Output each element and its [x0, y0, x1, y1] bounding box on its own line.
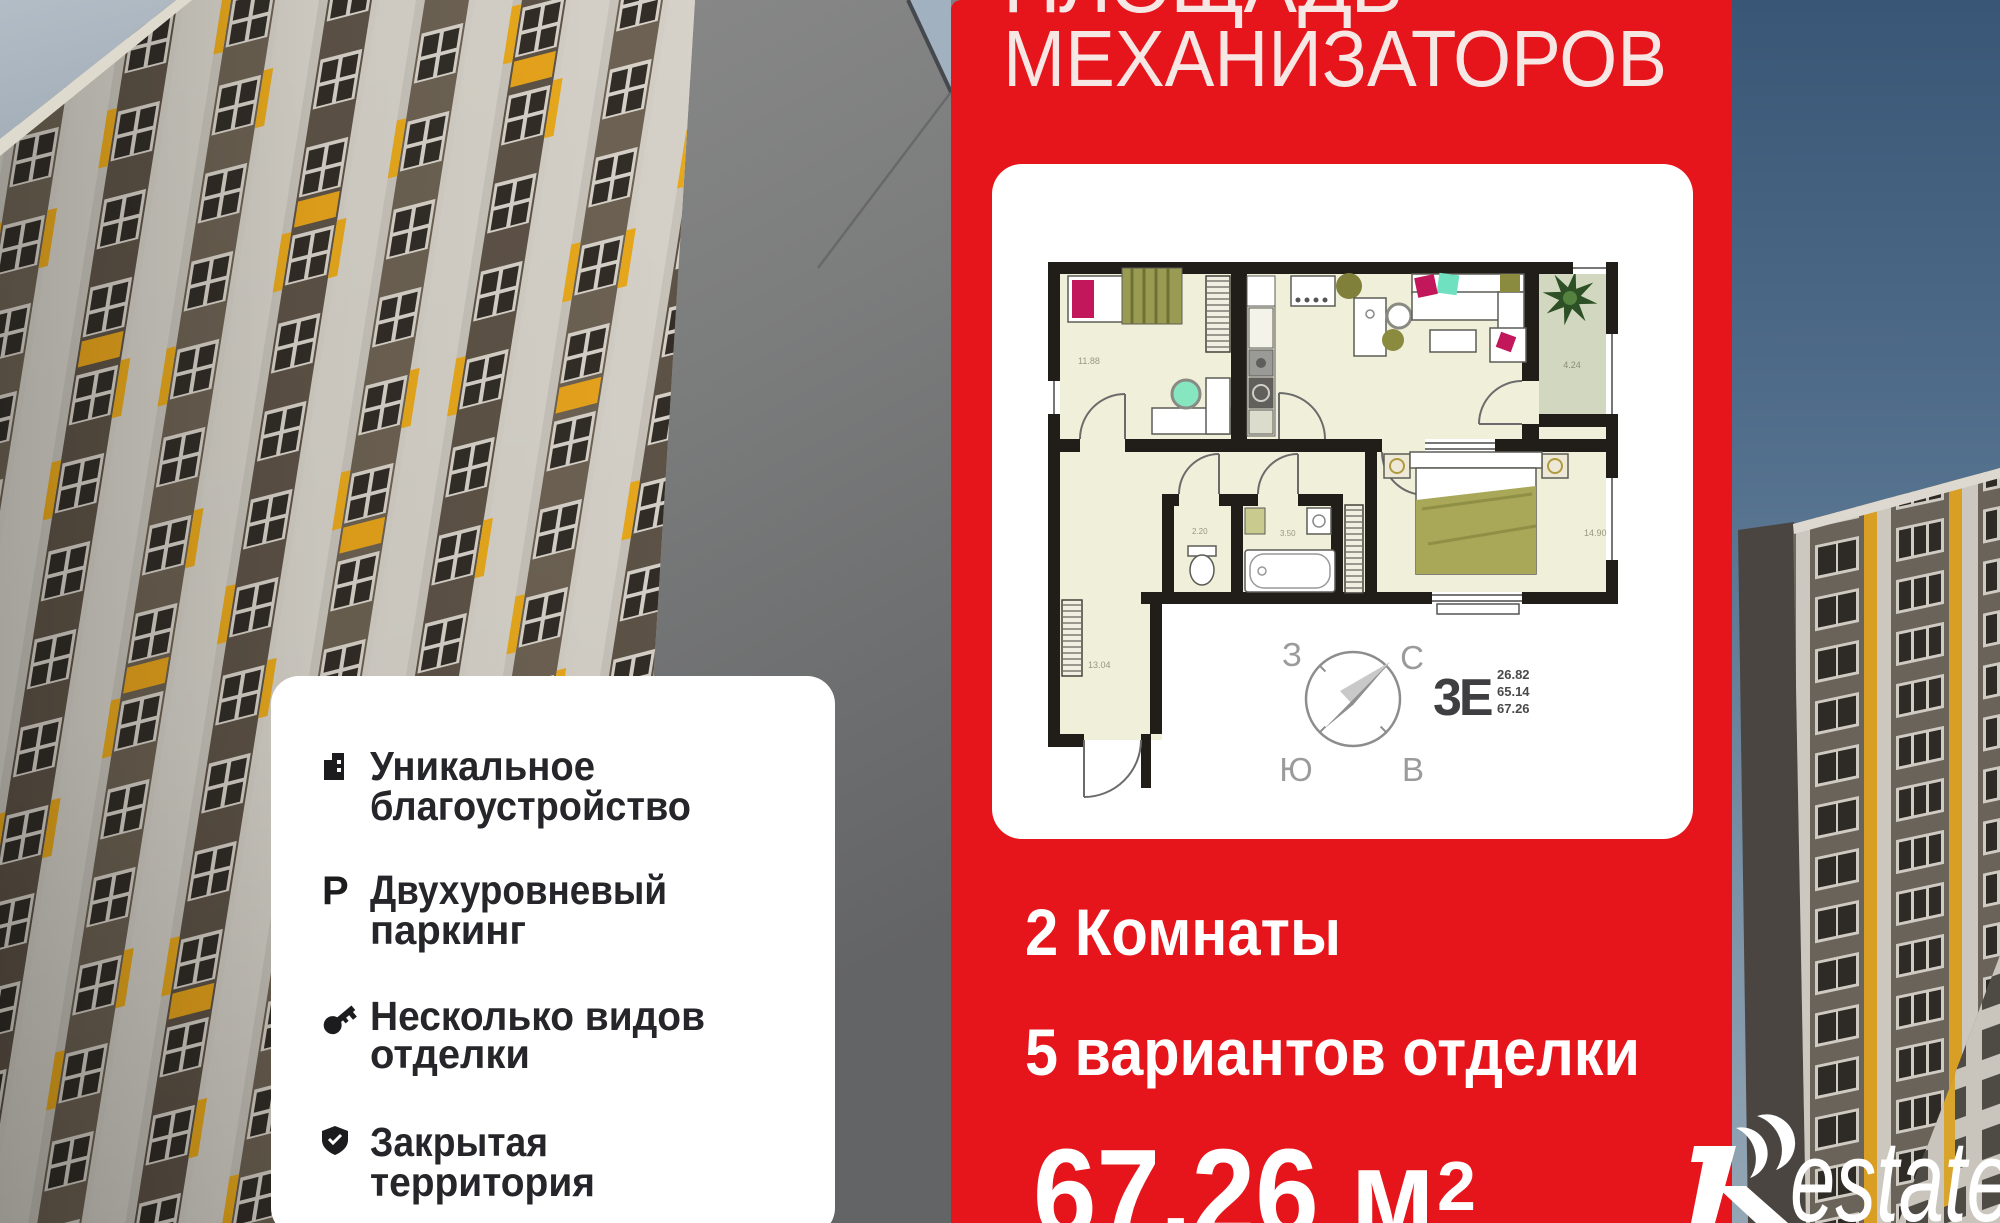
svg-text:67.26 м: 67.26 м [1033, 1123, 1435, 1223]
svg-text:estate: estate [1790, 1116, 2000, 1223]
svg-text:2: 2 [1437, 1147, 1476, 1223]
svg-text:2 Комнаты: 2 Комнаты [1025, 895, 1341, 969]
svg-text:Р: Р [322, 869, 349, 913]
svg-text:благоустройство: благоустройство [370, 783, 691, 829]
svg-text:отделки: отделки [370, 1031, 530, 1077]
svg-text:МЕХАНИЗАТОРОВ: МЕХАНИЗАТОРОВ [1003, 14, 1667, 103]
svg-text:5 вариантов отделки: 5 вариантов отделки [1025, 1015, 1640, 1089]
svg-text:территория: территория [370, 1159, 595, 1205]
svg-text:паркинг: паркинг [370, 907, 526, 953]
